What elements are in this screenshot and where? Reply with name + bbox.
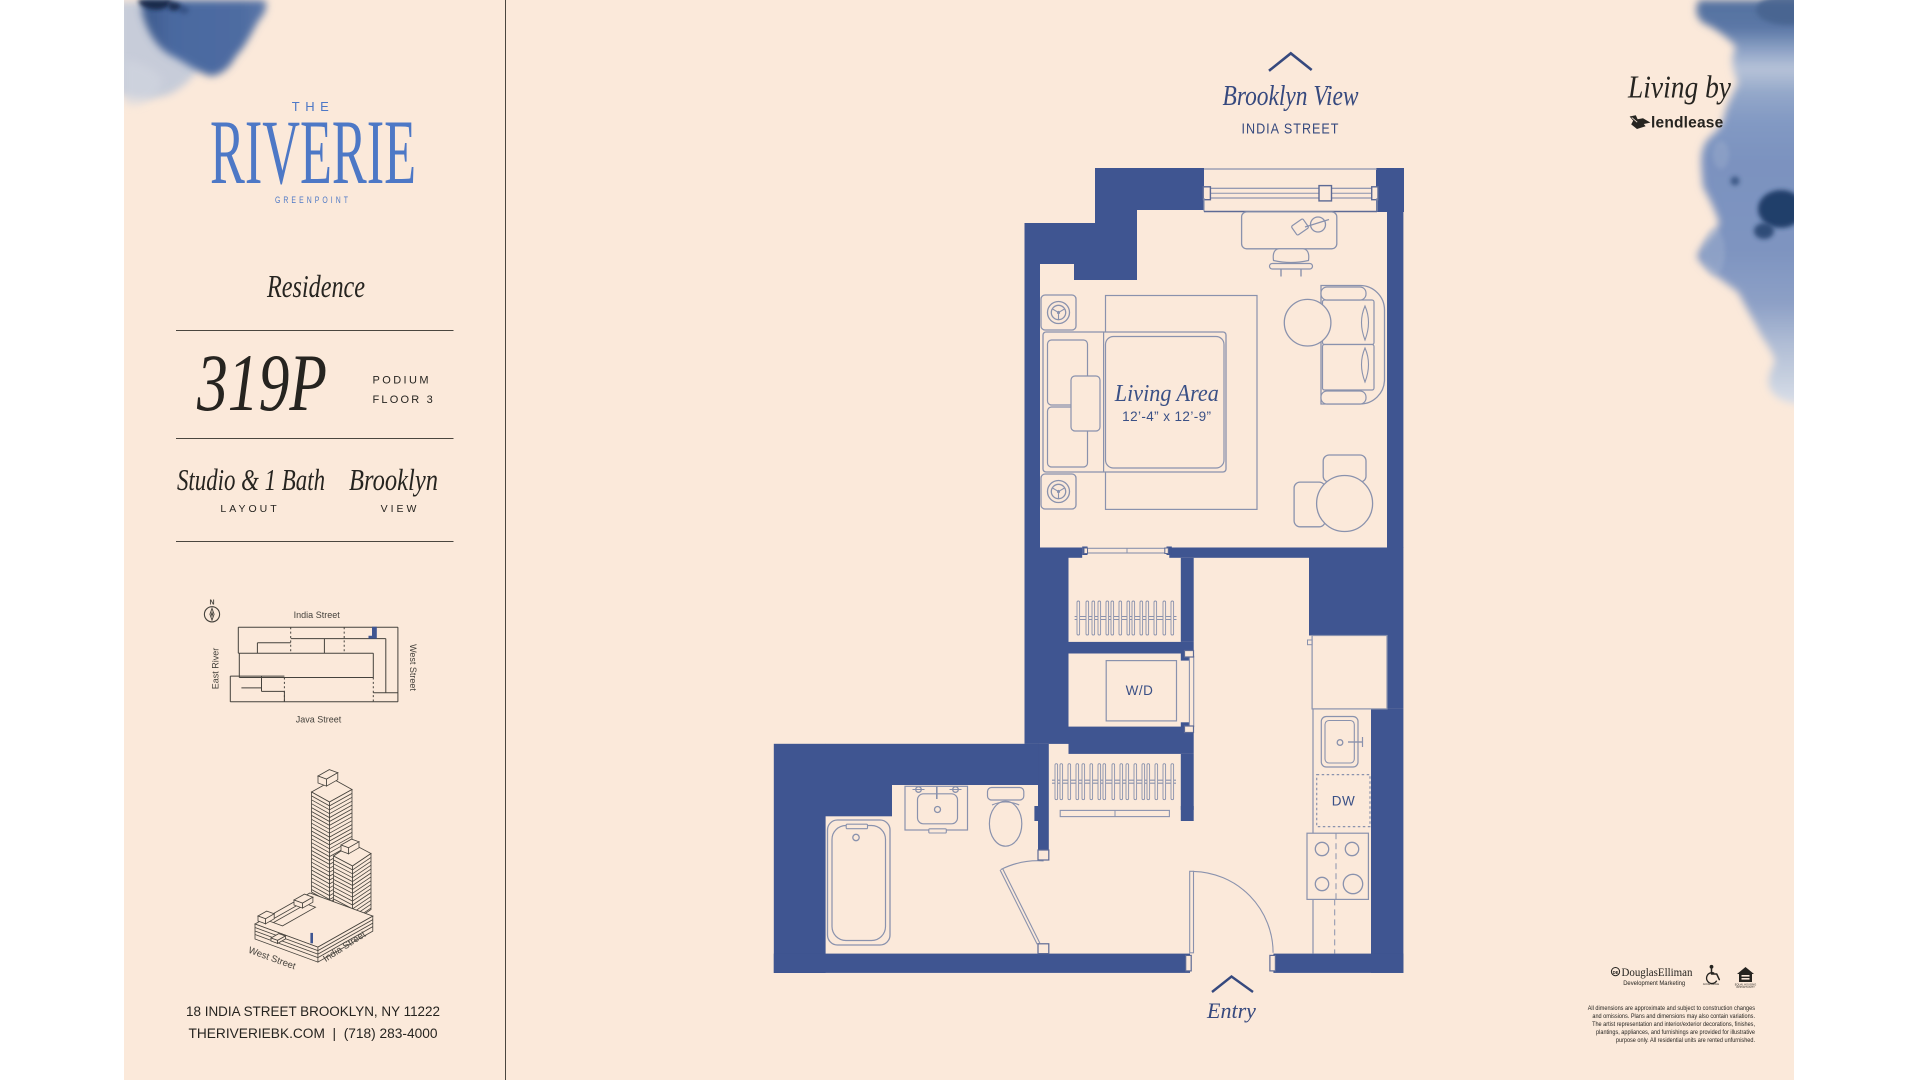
- svg-text:Development Marketing: Development Marketing: [1623, 980, 1685, 987]
- svg-text:Brooklyn View: Brooklyn View: [1223, 80, 1360, 112]
- svg-text:ACCESSIBLE: ACCESSIBLE: [1703, 982, 1720, 986]
- svg-text:W/D: W/D: [1126, 683, 1154, 698]
- svg-text:INDIA STREET: INDIA STREET: [1242, 121, 1340, 138]
- svg-text:Living by: Living by: [1627, 69, 1732, 105]
- svg-text:OPPORTUNITY: OPPORTUNITY: [1736, 985, 1755, 989]
- svg-text:DouglasElliman: DouglasElliman: [1622, 967, 1693, 979]
- svg-text:DE: DE: [1613, 970, 1619, 975]
- svg-text:Living Area: Living Area: [1114, 381, 1219, 407]
- svg-text:DW: DW: [1332, 794, 1356, 809]
- svg-text:lendlease: lendlease: [1651, 115, 1724, 132]
- svg-text:12’-4” x 12’-9”: 12’-4” x 12’-9”: [1122, 409, 1211, 424]
- svg-text:Entry: Entry: [1206, 998, 1256, 1023]
